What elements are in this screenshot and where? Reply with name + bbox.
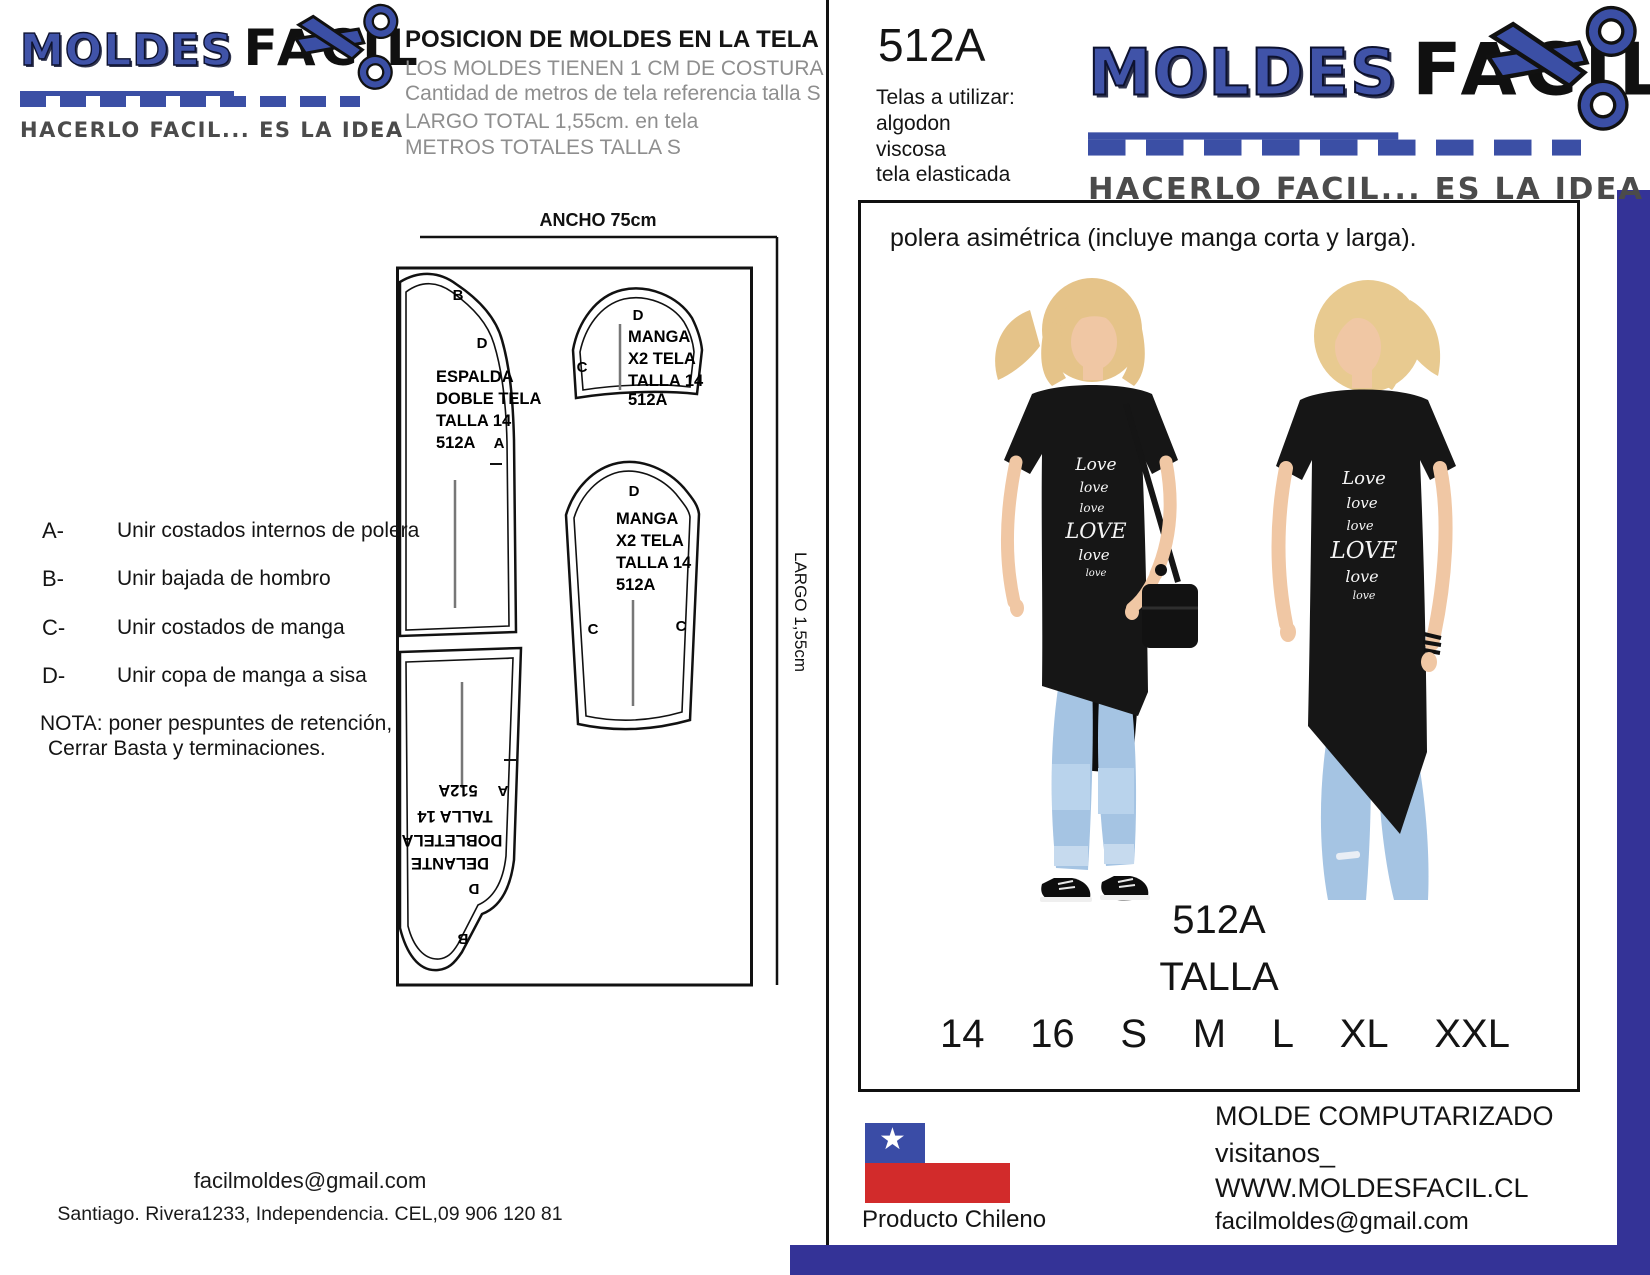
piece-label: MANGA <box>628 328 690 346</box>
piece-label: DELANTE <box>411 854 489 872</box>
pattern-code: 512A <box>878 18 985 72</box>
shirt-print-line: LOVE <box>1329 538 1397 564</box>
piece-delante: 512A A TALLA 14 DOBLETELA DELANTE D B <box>400 648 521 970</box>
instruction-key-a: A- <box>42 518 64 544</box>
size-option: 16 <box>1030 1012 1075 1057</box>
brand-name-moldes: MOLDES <box>20 11 234 96</box>
footer-website: WWW.MOLDESFACIL.CL <box>1215 1173 1529 1204</box>
layout-subtitle-3: LARGO TOTAL 1,55cm. en tela <box>405 110 698 134</box>
shirt-print-line: Love <box>1074 455 1116 475</box>
right-navy-bar <box>1617 190 1650 1275</box>
sizes-row: 14 16 S M L XL XXL <box>940 1012 1510 1057</box>
shirt-print-line: love <box>1079 480 1108 496</box>
length-measure-label: LARGO 1,55cm <box>791 552 810 672</box>
mark-d: D <box>477 335 488 352</box>
logo-dashed-line <box>20 96 360 107</box>
brand-logo-row: MOLDESFACIL <box>1088 12 1627 137</box>
size-option: 14 <box>940 1012 985 1057</box>
mark-d: D <box>633 307 644 324</box>
layout-subtitle-4: METROS TOTALES TALLA S <box>405 136 681 160</box>
brand-logo-left: MOLDESFACIL HACERLO FACIL... ES LA IDEA <box>20 8 392 142</box>
star-icon: ★ <box>879 1125 906 1155</box>
brand-name-moldes: MOLDES <box>1088 16 1398 139</box>
brand-logo-right: MOLDESFACIL HACERLO FACIL... ES LA IDEA <box>1088 12 1627 206</box>
contact-address: Santiago. Rivera1233, Independencia. CEL… <box>40 1203 580 1226</box>
mark-b: B <box>457 930 468 947</box>
shirt-print-line: love <box>1078 546 1109 564</box>
piece-label: TALLA 14 <box>436 412 512 430</box>
contact-email: facilmoldes@gmail.com <box>40 1168 580 1194</box>
box-pattern-code: 512A <box>858 898 1580 943</box>
shirt-print-line: love <box>1086 568 1107 579</box>
shirt-print-line: love <box>1353 589 1376 602</box>
product-photo: Love love love LOVE love love <box>880 252 1540 902</box>
fabric-item-1: algodon <box>876 112 951 136</box>
piece-label: X2 TELA <box>628 350 696 368</box>
model-left: Love love love LOVE love love <box>995 278 1198 902</box>
mark-d: D <box>468 880 479 897</box>
layout-title: POSICION DE MOLDES EN LA TELA <box>405 26 819 54</box>
flag-red-stripe <box>865 1163 1010 1203</box>
layout-subtitle-2: Cantidad de metros de tela referencia ta… <box>405 82 821 106</box>
piece-label: TALLA 14 <box>616 554 692 572</box>
piece-manga-larga: D C C MANGA X2 TELA TALLA 14 512A <box>566 462 699 729</box>
size-option: XL <box>1340 1012 1389 1057</box>
shirt-print-line: Love <box>1341 468 1386 489</box>
piece-label: DOBLE TELA <box>436 390 541 408</box>
size-option: M <box>1193 1012 1226 1057</box>
piece-label: MANGA <box>616 510 678 528</box>
piece-manga-corta: D C MANGA X2 TELA TALLA 14 512A <box>573 288 704 409</box>
mark-a: A <box>494 435 505 452</box>
size-option: XXL <box>1434 1012 1510 1057</box>
footer-molde-computarizado: MOLDE COMPUTARIZADO <box>1215 1101 1554 1132</box>
piece-label: 512A <box>616 576 656 594</box>
mark-c: C <box>676 618 687 635</box>
size-option: S <box>1120 1012 1147 1057</box>
piece-label: 512A <box>628 391 668 409</box>
box-size-title: TALLA <box>858 955 1580 1000</box>
scissors-icon <box>294 0 406 96</box>
shirt-print-line: love <box>1080 501 1105 515</box>
note-line-1: NOTA: poner pespuntes de retención, <box>40 712 392 736</box>
pattern-layout-diagram: ANCHO 75cm LARGO 1,55cm B D ESPALDA DOBL… <box>390 195 810 995</box>
piece-label: X2 TELA <box>616 532 684 550</box>
piece-label: ESPALDA <box>436 368 514 386</box>
piece-label: 512A <box>436 434 476 452</box>
instruction-key-c: C- <box>42 615 65 641</box>
piece-label: TALLA 14 <box>417 807 493 825</box>
piece-label: TALLA 14 <box>628 372 704 390</box>
scissors-icon <box>1485 0 1647 140</box>
instruction-key-d: D- <box>42 663 65 689</box>
instruction-text-b: Unir bajada de hombro <box>117 567 331 591</box>
contact-block: facilmoldes@gmail.com Santiago. Rivera12… <box>40 1168 580 1226</box>
page-divider-line <box>826 0 829 1246</box>
footer-visitanos: visitanos_ <box>1215 1138 1335 1169</box>
mark-a: A <box>497 782 508 799</box>
instruction-text-c: Unir costados de manga <box>117 616 345 640</box>
layout-subtitle-1: LOS MOLDES TIENEN 1 CM DE COSTURA <box>405 57 824 81</box>
piece-label: 512A <box>438 781 478 799</box>
shirt-print-line: love <box>1346 494 1377 512</box>
piece-espalda: B D ESPALDA DOBLE TELA TALLA 14 512A A <box>400 274 541 636</box>
footer-email: facilmoldes@gmail.com <box>1215 1208 1469 1236</box>
instruction-text-a: Unir costados internos de polera <box>117 519 419 543</box>
logo-dashed-line <box>1088 140 1581 156</box>
size-option: L <box>1272 1012 1294 1057</box>
mark-c: C <box>588 621 599 638</box>
shirt-print-line: love <box>1345 567 1378 586</box>
mark-c: C <box>577 359 588 376</box>
brand-tagline: HACERLO FACIL... ES LA IDEA <box>20 118 392 142</box>
fabric-item-3: tela elasticada <box>876 163 1010 187</box>
fabric-item-2: viscosa <box>876 138 946 162</box>
brand-logo-row: MOLDESFACIL <box>20 8 392 94</box>
shirt-print-line: LOVE <box>1064 519 1126 543</box>
product-description: polera asimétrica (incluye manga corta y… <box>890 224 1417 253</box>
mark-b: B <box>453 287 464 304</box>
mark-d: D <box>629 483 640 500</box>
flag-blue-canton: ★ <box>865 1123 925 1163</box>
width-measure-label: ANCHO 75cm <box>539 210 656 230</box>
shirt-print-line: love <box>1346 519 1373 534</box>
instruction-key-b: B- <box>42 566 64 592</box>
piece-label: DOBLETELA <box>402 831 503 849</box>
note-line-2: Cerrar Basta y terminaciones. <box>48 737 326 761</box>
fabrics-title: Telas a utilizar: <box>876 86 1015 110</box>
flag-caption: Producto Chileno <box>862 1206 1046 1234</box>
bottom-navy-bar <box>790 1245 1650 1275</box>
instruction-text-d: Unir copa de manga a sisa <box>117 664 367 688</box>
pattern-sheet-page: MOLDESFACIL HACERLO FACIL... ES LA IDEA … <box>0 0 1650 1275</box>
model-right: Love love love LOVE love love <box>1276 280 1456 900</box>
